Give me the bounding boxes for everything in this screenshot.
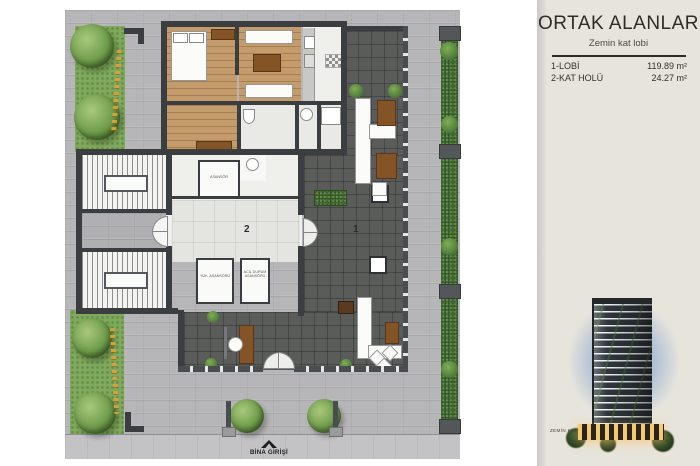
brochure-page: 2 ASANSÖR YÜK. ASANSÖRÜ ACİL DURUM ASANS… xyxy=(0,0,700,466)
wall-segment xyxy=(161,21,347,27)
wall-segment xyxy=(125,426,144,432)
tower xyxy=(592,298,652,432)
panel-shadow xyxy=(537,0,547,466)
wall-segment xyxy=(82,248,166,252)
washbasin xyxy=(300,108,313,121)
entrance-label: BİNA GİRİŞİ xyxy=(238,449,300,456)
wall-segment xyxy=(82,209,166,213)
emergency-elevator-label: ACİL DURUM ASANSÖRÜ xyxy=(243,270,267,278)
reception-panel xyxy=(224,327,227,359)
washbasin xyxy=(246,158,259,171)
lobby-marker: 1 xyxy=(353,224,359,235)
info-panel: ORTAK ALANLAR Zemin kat lobi 1-LOBİ 119.… xyxy=(537,0,700,466)
lounge-sofa xyxy=(369,124,396,139)
bush xyxy=(440,42,458,60)
potted-plant xyxy=(349,84,363,98)
area-label: 2-KAT HOLÜ xyxy=(551,73,603,85)
wardrobe xyxy=(211,29,235,40)
wall-segment xyxy=(295,105,299,151)
stool xyxy=(372,182,387,196)
wall-segment xyxy=(161,21,167,155)
planter-box xyxy=(439,284,461,299)
wall-segment xyxy=(237,103,241,151)
area-value: 119.89 m² xyxy=(647,61,687,73)
indoor-planter xyxy=(330,190,347,206)
desk-chair xyxy=(228,337,243,352)
elevator-label: ASANSÖR xyxy=(202,175,237,179)
wall-segment xyxy=(235,25,239,75)
armchair xyxy=(338,301,354,314)
stove xyxy=(304,54,315,68)
glass-facade-right xyxy=(403,26,408,372)
bush xyxy=(441,238,458,255)
lounge-sofa xyxy=(355,98,371,184)
wall-segment xyxy=(298,246,304,316)
stair-landing xyxy=(104,272,148,289)
pillow xyxy=(189,33,204,43)
area-row: 2-KAT HOLÜ 24.27 m² xyxy=(551,73,687,85)
tree xyxy=(72,318,112,358)
wall-segment xyxy=(76,149,172,155)
kitchen-sink xyxy=(304,36,315,49)
elevator-room: ASANSÖR xyxy=(198,160,240,198)
coffee-table xyxy=(253,54,281,72)
area-row: 1-LOBİ 119.89 m² xyxy=(551,61,687,73)
emergency-elevator-room: ACİL DURUM ASANSÖRÜ xyxy=(240,258,270,304)
wall-segment xyxy=(298,155,304,215)
bush xyxy=(441,361,458,378)
wall-segment xyxy=(76,149,82,314)
column xyxy=(369,256,387,274)
potted-plant xyxy=(388,84,402,98)
service-elevator-label: YÜK. ASANSÖRÜ xyxy=(199,274,230,278)
floor-caption: ZEMİN KAT xyxy=(550,428,577,433)
wall-segment xyxy=(76,308,178,314)
wall-segment xyxy=(172,196,300,199)
bush xyxy=(441,116,458,133)
bollard xyxy=(333,401,338,429)
window-wall-bottom xyxy=(178,366,263,372)
divider xyxy=(552,55,686,57)
wall-segment xyxy=(341,21,347,155)
bollard xyxy=(226,401,231,429)
hall-floor xyxy=(172,200,300,262)
planter-box xyxy=(439,26,461,41)
indoor-planter xyxy=(314,190,331,206)
side-table xyxy=(385,322,399,344)
toilet xyxy=(243,109,255,124)
pillow xyxy=(173,33,188,43)
planter-box xyxy=(439,144,461,159)
panel-title: ORTAK ALANLAR xyxy=(537,13,700,35)
tower-shading xyxy=(594,304,652,432)
coffee-table xyxy=(377,100,396,126)
shower xyxy=(321,107,341,125)
coffee-table xyxy=(376,153,397,179)
bollard-base xyxy=(329,427,343,437)
hall-marker: 2 xyxy=(244,224,250,235)
bollard-base xyxy=(222,427,236,437)
sofa xyxy=(245,84,293,98)
sofa xyxy=(245,30,293,44)
building-render: ZEMİN KAT xyxy=(548,282,694,462)
area-value: 24.27 m² xyxy=(651,73,687,85)
wall-segment xyxy=(138,28,144,44)
wall-segment xyxy=(178,310,184,372)
service-elevator-room: YÜK. ASANSÖRÜ xyxy=(196,258,234,304)
tree xyxy=(70,24,114,68)
building-base-lights xyxy=(578,424,664,440)
wall-segment xyxy=(317,105,321,151)
potted-plant xyxy=(207,311,219,323)
wall-segment xyxy=(165,101,341,105)
stair-landing xyxy=(104,175,148,192)
panel-subtitle: Zemin kat lobi xyxy=(537,38,700,49)
planter-box xyxy=(439,419,461,434)
area-label: 1-LOBİ xyxy=(551,61,580,73)
tree xyxy=(74,392,116,434)
window-wall-bottom xyxy=(294,366,408,372)
wall-segment xyxy=(341,26,408,31)
